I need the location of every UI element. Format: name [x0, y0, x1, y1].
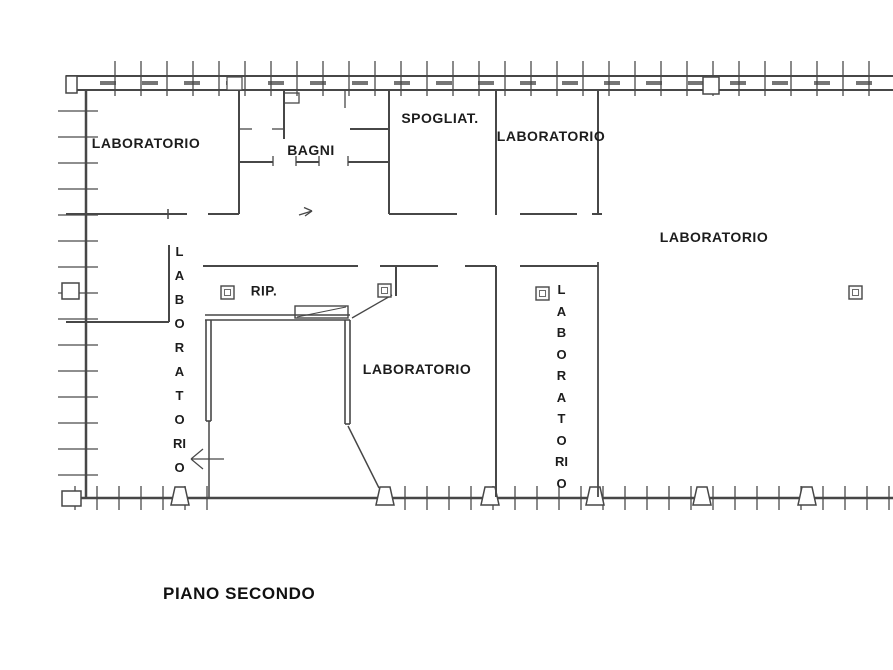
column-marker	[536, 287, 549, 300]
door-leaf-line	[348, 426, 379, 488]
floor-title: PIANO SECONDO	[163, 584, 315, 604]
column-marker	[378, 284, 391, 297]
corner-pillar	[66, 76, 77, 93]
stairwell	[205, 306, 379, 497]
room-label-laboratorio-left-vertical: LABORATORIO	[172, 240, 187, 480]
stair-direction-arrow	[191, 449, 224, 469]
column-marker	[849, 286, 862, 299]
wall-pillar	[227, 77, 242, 90]
floor-plan-drawing	[0, 0, 893, 670]
room-label-spogliatoio: SPOGLIAT.	[401, 110, 478, 126]
wall-pillar	[703, 77, 719, 94]
room-label-laboratorio-top-left: LABORATORIO	[92, 135, 200, 151]
room-label-bagni: BAGNI	[287, 142, 335, 158]
door-symbol	[693, 487, 711, 505]
floor-plan-page: LABORATORIO BAGNI SPOGLIAT. LABORATORIO …	[0, 0, 893, 670]
outer-wall-top	[66, 61, 893, 96]
column-markers	[221, 284, 862, 300]
room-label-rip: RIP.	[251, 284, 278, 299]
radiator-symbol	[62, 283, 79, 299]
door-symbol	[798, 487, 816, 505]
room-label-laboratorio-center: LABORATORIO	[363, 361, 471, 377]
column-marker	[221, 286, 234, 299]
room-label-laboratorio-right-vertical: LABORATORIO	[554, 279, 569, 494]
entrance-arrow	[299, 208, 312, 217]
room-label-laboratorio-top-center: LABORATORIO	[497, 128, 605, 144]
outer-wall-left	[58, 90, 98, 497]
door-symbol	[586, 487, 604, 505]
door-symbol	[171, 487, 189, 505]
door-symbol	[376, 487, 394, 505]
room-label-laboratorio-right: LABORATORIO	[660, 229, 768, 245]
outer-wall-bottom	[62, 486, 893, 510]
corner-pillar	[62, 491, 81, 506]
